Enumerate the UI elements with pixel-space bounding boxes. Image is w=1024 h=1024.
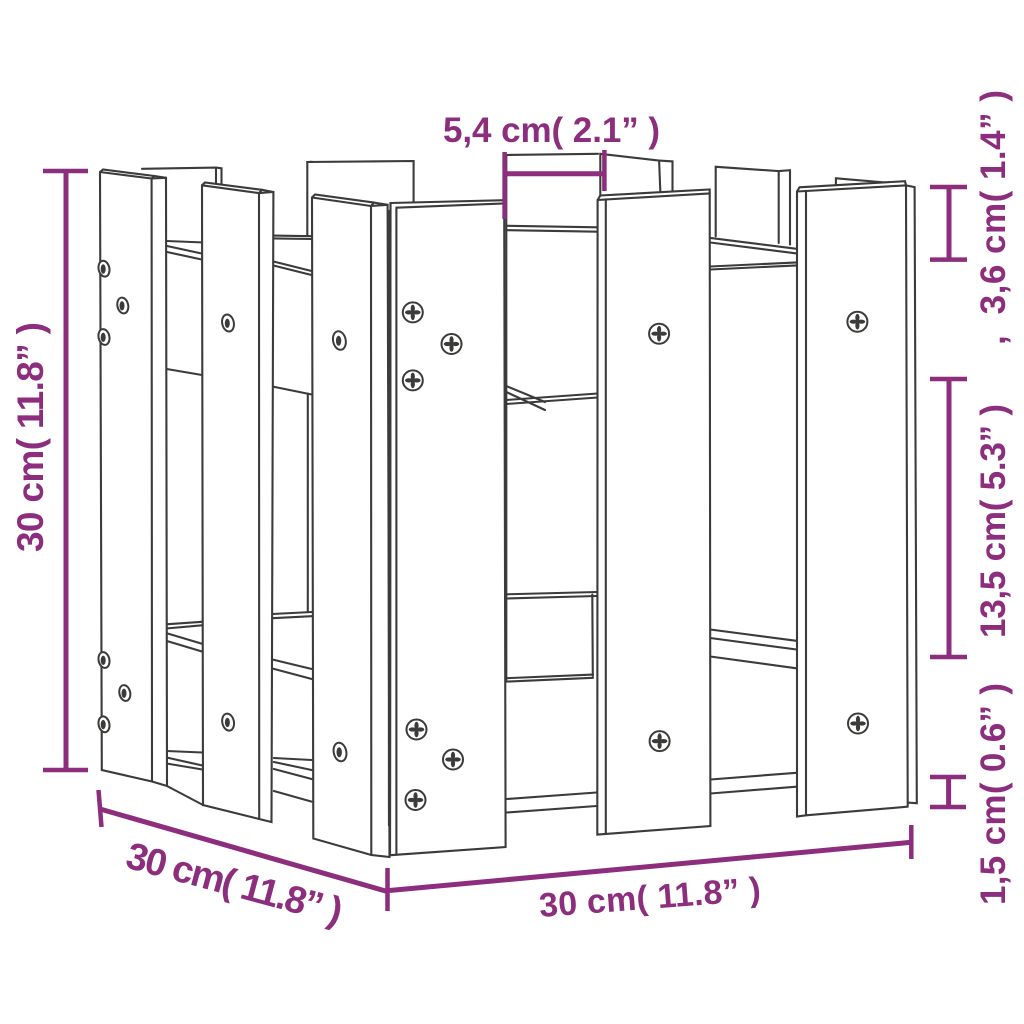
svg-text:5,4 cm( 2.1” ): 5,4 cm( 2.1” )	[443, 111, 660, 150]
svg-text:13,5 cm( 5.3” ): 13,5 cm( 5.3” )	[974, 404, 1013, 638]
svg-text:, 3,6 cm( 1.4” ): , 3,6 cm( 1.4” )	[974, 90, 1013, 345]
svg-text:1,5 cm( 0.6” ): 1,5 cm( 0.6” )	[974, 683, 1013, 905]
svg-text:30 cm( 11.8” ): 30 cm( 11.8” )	[10, 322, 51, 552]
